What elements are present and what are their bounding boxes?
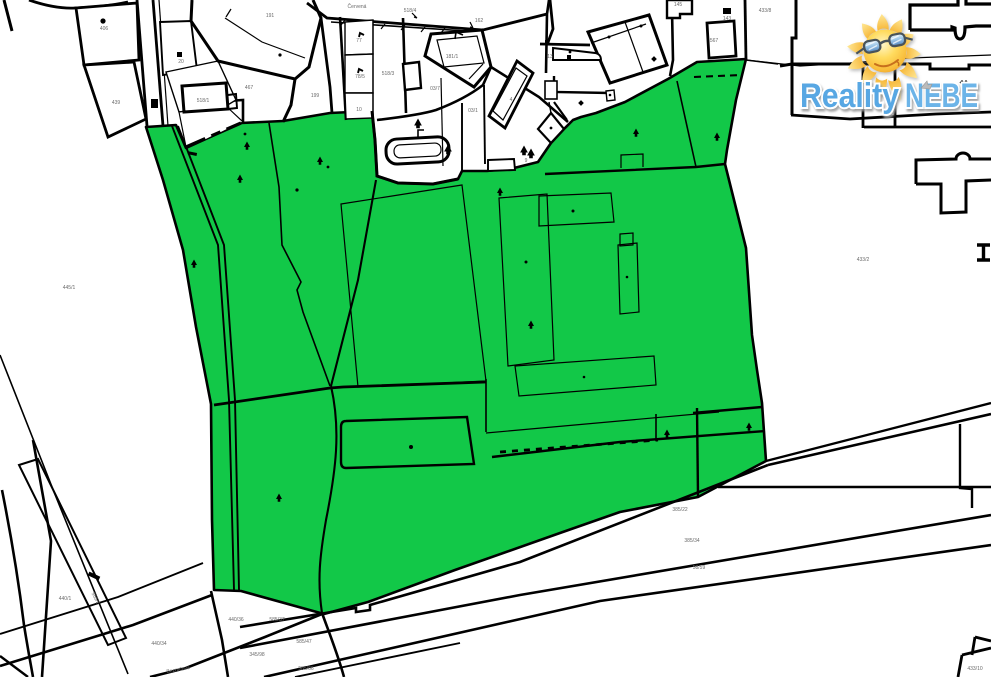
- svg-text:567: 567: [710, 38, 719, 44]
- svg-text:Červená: Červená: [348, 3, 367, 10]
- svg-text:4: 4: [510, 97, 513, 103]
- svg-text:518/4: 518/4: [404, 8, 417, 14]
- svg-text:585/66: 585/66: [298, 666, 314, 672]
- svg-text:181/1: 181/1: [446, 54, 459, 60]
- svg-text:58/59: 58/59: [693, 565, 706, 571]
- svg-text:440/34: 440/34: [151, 641, 167, 647]
- svg-text:445/1: 445/1: [63, 285, 76, 291]
- svg-text:518/3: 518/3: [382, 71, 395, 77]
- svg-text:406: 406: [100, 26, 109, 32]
- svg-text:9: 9: [525, 158, 528, 164]
- svg-text:585/47: 585/47: [296, 639, 312, 645]
- svg-text:162: 162: [475, 18, 484, 24]
- svg-text:78/5: 78/5: [355, 74, 365, 80]
- svg-text:433/10: 433/10: [967, 666, 983, 672]
- svg-text:518/1: 518/1: [197, 98, 210, 104]
- svg-text:585/37: 585/37: [269, 617, 285, 623]
- svg-text:440/36: 440/36: [228, 617, 244, 623]
- svg-text:199: 199: [311, 93, 320, 99]
- svg-text:191: 191: [266, 13, 275, 19]
- svg-text:433/2: 433/2: [857, 257, 870, 263]
- svg-text:10: 10: [356, 107, 362, 113]
- svg-text:385/34: 385/34: [684, 538, 700, 544]
- svg-text:467: 467: [245, 85, 254, 91]
- svg-text:Reality: Reality: [800, 77, 899, 115]
- svg-text:143: 143: [723, 16, 732, 22]
- svg-text:20: 20: [178, 59, 184, 65]
- svg-text:345/98: 345/98: [249, 652, 265, 658]
- svg-text:440/1: 440/1: [59, 596, 72, 602]
- svg-text:433/8: 433/8: [759, 8, 772, 14]
- svg-text:03/7: 03/7: [430, 86, 440, 92]
- svg-text:439: 439: [112, 100, 121, 106]
- svg-text:77: 77: [356, 38, 362, 44]
- svg-text:NEBE: NEBE: [905, 77, 978, 115]
- svg-text:145: 145: [674, 2, 683, 8]
- svg-text:385/22: 385/22: [672, 507, 688, 513]
- svg-text:03/1: 03/1: [468, 108, 478, 114]
- svg-text:13: 13: [547, 54, 553, 60]
